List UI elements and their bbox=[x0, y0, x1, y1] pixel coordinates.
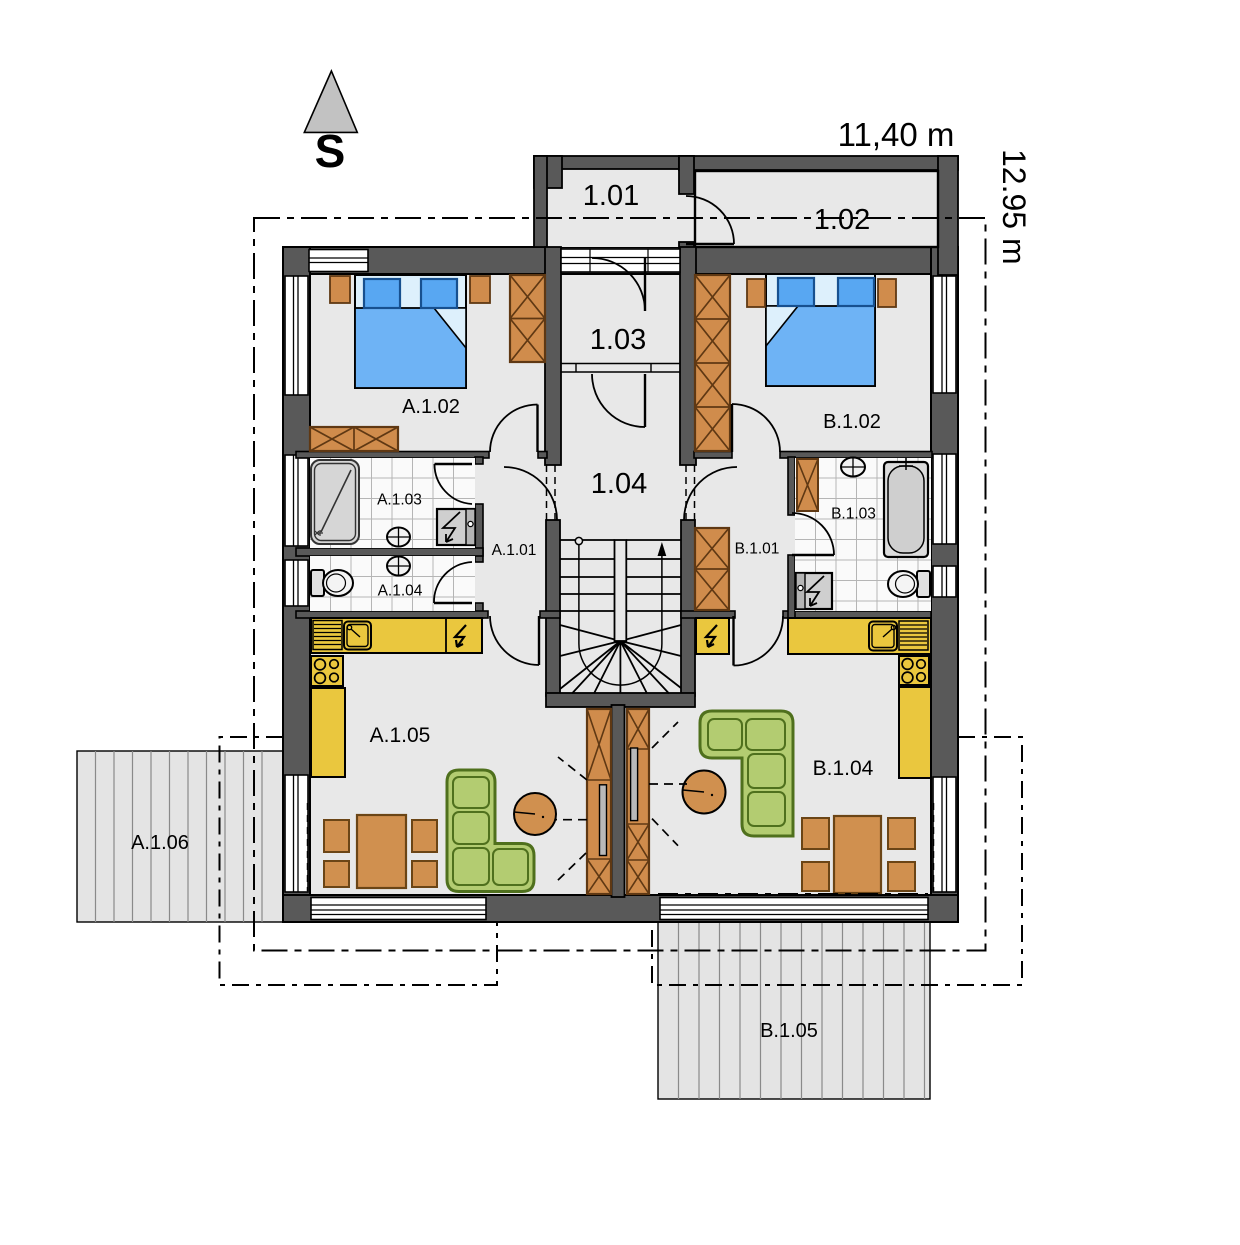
svg-text:A.1.04: A.1.04 bbox=[378, 583, 423, 600]
svg-text:B.1.05: B.1.05 bbox=[760, 1020, 818, 1042]
svg-text:1.01: 1.01 bbox=[583, 180, 639, 212]
svg-text:A.1.06: A.1.06 bbox=[131, 832, 189, 854]
svg-text:B.1.03: B.1.03 bbox=[831, 506, 876, 523]
svg-text:A.1.03: A.1.03 bbox=[377, 492, 422, 509]
svg-text:S: S bbox=[315, 125, 346, 177]
svg-text:A.1.05: A.1.05 bbox=[370, 724, 431, 747]
svg-text:12.95 m: 12.95 m bbox=[996, 149, 1032, 265]
svg-text:A.1.02: A.1.02 bbox=[402, 396, 460, 418]
svg-text:B.1.02: B.1.02 bbox=[823, 411, 881, 433]
svg-text:B.1.01: B.1.01 bbox=[735, 541, 780, 558]
svg-text:B.1.04: B.1.04 bbox=[813, 757, 874, 780]
svg-text:11,40 m: 11,40 m bbox=[838, 116, 955, 153]
svg-text:1.04: 1.04 bbox=[591, 468, 647, 500]
svg-text:A.1.01: A.1.01 bbox=[492, 542, 537, 559]
svg-text:1.02: 1.02 bbox=[814, 204, 870, 236]
svg-text:1.03: 1.03 bbox=[590, 324, 646, 356]
